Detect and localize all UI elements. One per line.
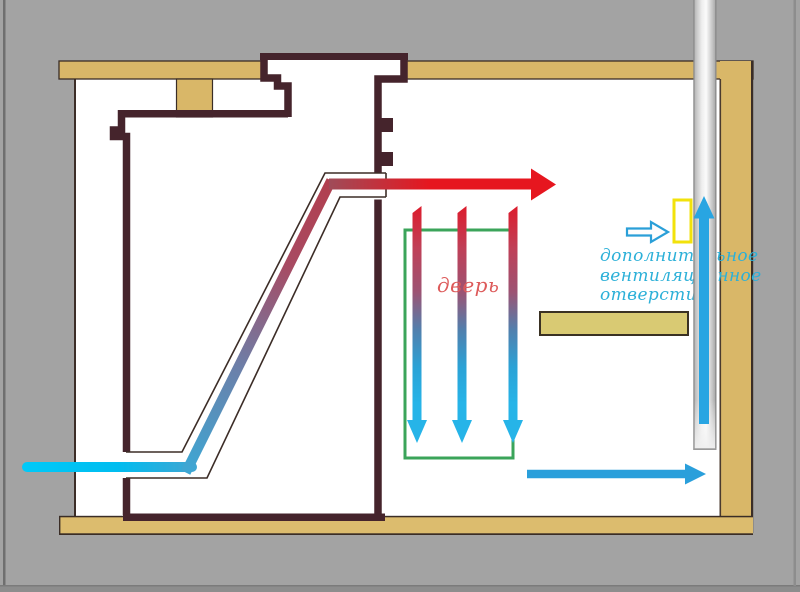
- vent-label-line3: отверстие: [600, 285, 707, 305]
- room-left-edge-line: [74, 79, 76, 517]
- chimney-tooth-upper: [382, 118, 394, 132]
- chimney-tooth-lower: [382, 152, 394, 166]
- vent-label-line1: дополнительное: [600, 246, 759, 266]
- right-wall-inner-line: [720, 79, 722, 517]
- vent-opening-marker: [674, 200, 691, 242]
- vent-label-line2: вентиляционное: [600, 266, 762, 286]
- vent-pipe-left-line: [693, 0, 694, 450]
- frame-bottom-edge: [0, 586, 800, 592]
- vent-pipe-right-line: [715, 0, 716, 450]
- pipe-updraft-shaft: [699, 216, 709, 424]
- door-arrow-shaft: [458, 206, 467, 421]
- door-arrow-shaft: [413, 206, 422, 421]
- right-wall: [720, 61, 753, 533]
- diagram-canvas: дверь дополнительное вентиляционное отве…: [0, 0, 800, 592]
- door-arrow-shaft: [509, 206, 518, 421]
- vent-pipe-bottom-line: [693, 448, 716, 450]
- frame-right-edge: [794, 0, 797, 586]
- frame-bottom-line: [0, 585, 800, 587]
- floor-left-cap: [59, 517, 60, 534]
- chimney-lintel: [260, 53, 408, 60]
- ventilation-scheme-drawing: дверь дополнительное вентиляционное отве…: [0, 0, 800, 592]
- right-wall-outer-line: [751, 61, 753, 533]
- door-label: дверь: [437, 273, 499, 297]
- frame-left-edge: [3, 0, 6, 589]
- shelf: [540, 312, 688, 335]
- floor-bottom-line: [59, 533, 753, 535]
